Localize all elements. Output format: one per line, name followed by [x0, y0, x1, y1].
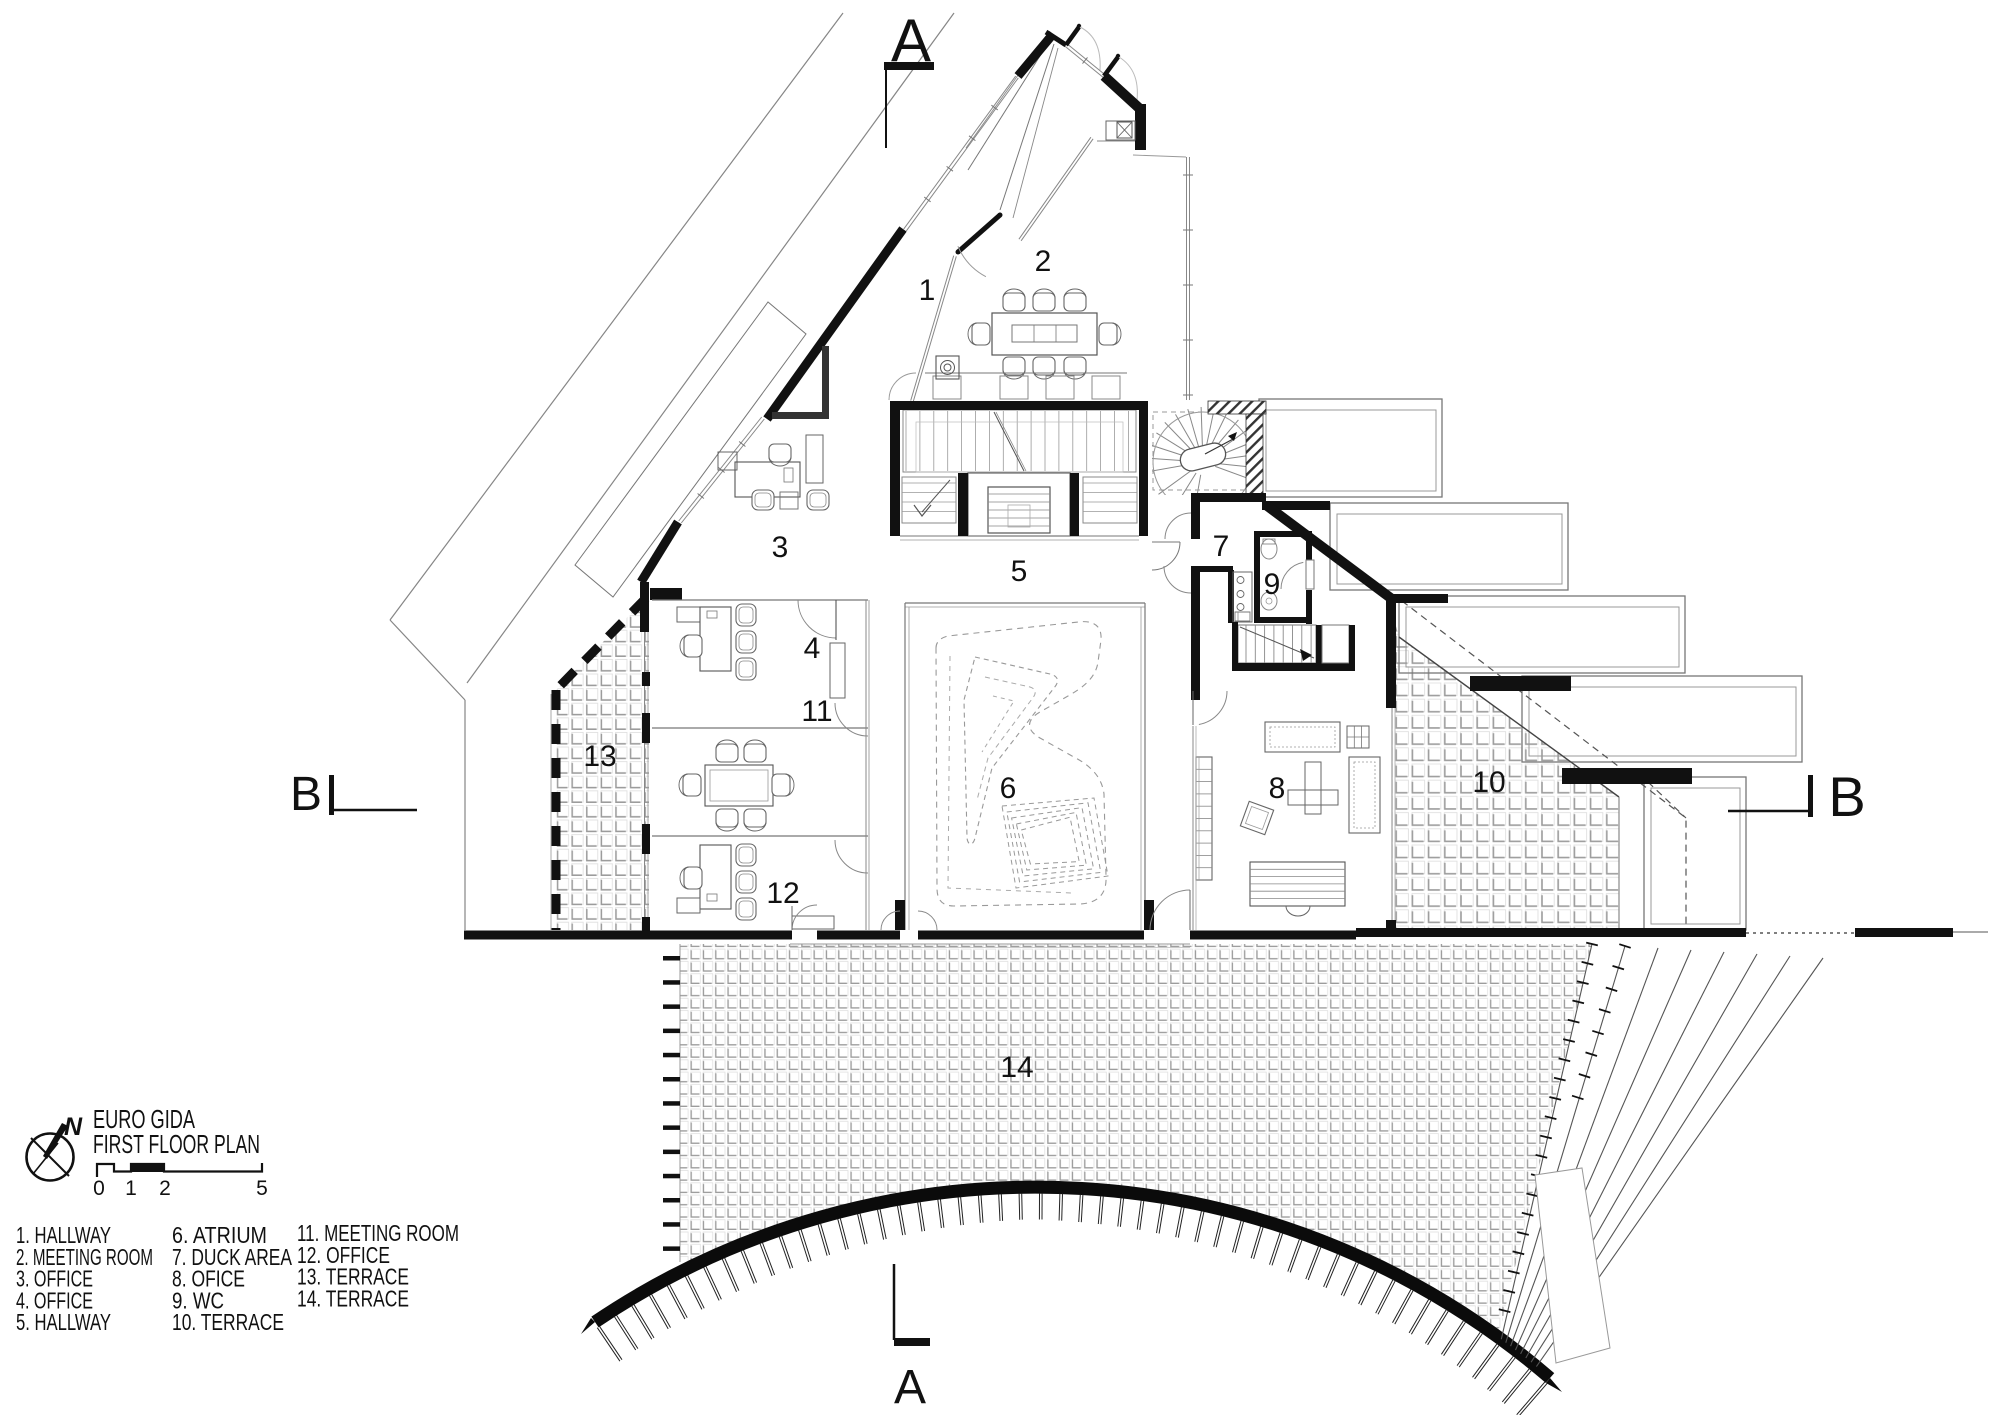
svg-text:8: 8 [1269, 772, 1286, 805]
svg-text:A: A [894, 1361, 926, 1414]
svg-text:10: 10 [1472, 766, 1505, 799]
svg-text:A: A [891, 7, 931, 74]
svg-text:6: 6 [1000, 772, 1017, 805]
svg-text:13: 13 [583, 740, 616, 773]
svg-text:10. TERRACE: 10. TERRACE [172, 1309, 284, 1335]
svg-text:FIRST FLOOR PLAN: FIRST FLOOR PLAN [93, 1129, 260, 1159]
svg-text:1: 1 [125, 1177, 137, 1200]
svg-text:11: 11 [801, 695, 832, 728]
svg-text:7: 7 [1213, 530, 1230, 563]
svg-text:2: 2 [1035, 245, 1052, 278]
svg-text:5. HALLWAY: 5. HALLWAY [16, 1309, 111, 1335]
svg-text:3: 3 [772, 531, 789, 564]
svg-text:2: 2 [159, 1177, 171, 1200]
svg-text:B: B [290, 768, 322, 821]
svg-text:14: 14 [1000, 1051, 1033, 1084]
svg-text:1: 1 [919, 274, 936, 307]
svg-text:5: 5 [256, 1177, 268, 1200]
svg-text:B: B [1828, 765, 1865, 828]
svg-text:9: 9 [1264, 568, 1281, 601]
svg-text:4: 4 [804, 632, 821, 665]
svg-text:N: N [64, 1113, 83, 1141]
svg-text:14. TERRACE: 14. TERRACE [297, 1285, 409, 1311]
svg-text:5: 5 [1011, 555, 1028, 588]
svg-text:0: 0 [93, 1177, 105, 1200]
svg-text:12: 12 [766, 877, 799, 910]
